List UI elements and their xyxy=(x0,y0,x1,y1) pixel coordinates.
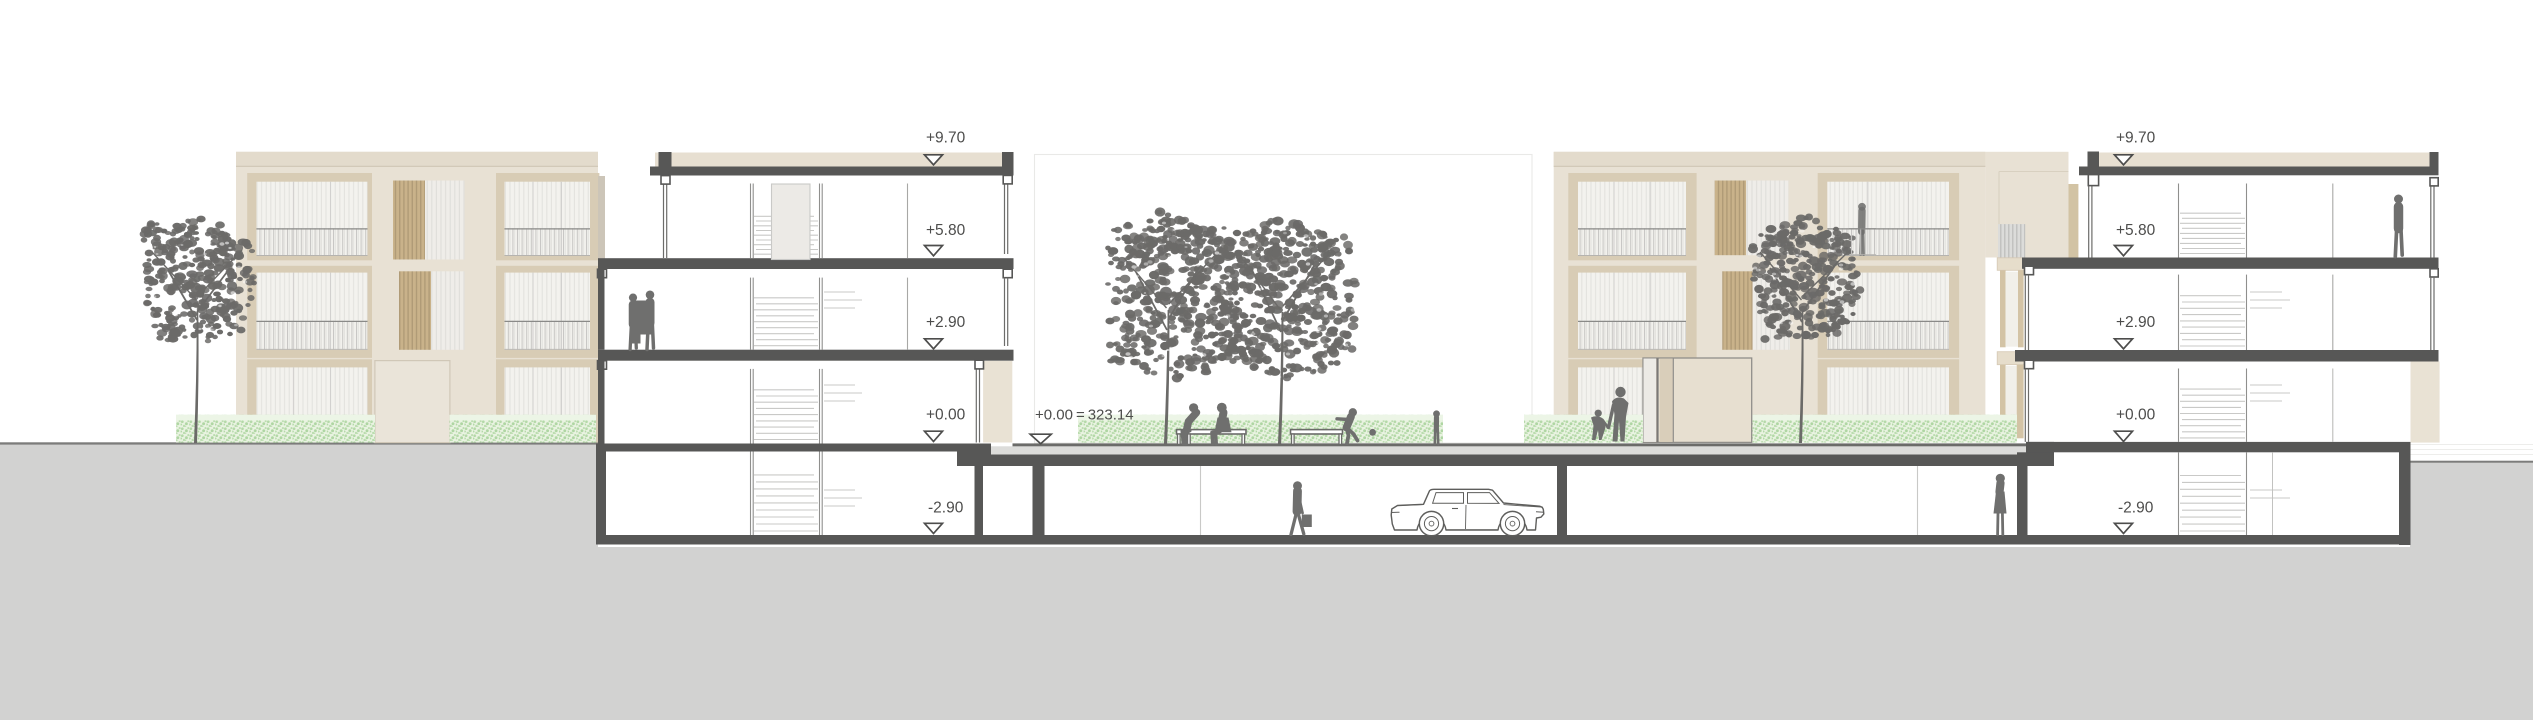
svg-text:+0.00: +0.00 xyxy=(2116,407,2156,424)
svg-text:+9.70: +9.70 xyxy=(2116,130,2156,147)
svg-text:+5.80: +5.80 xyxy=(926,222,966,239)
svg-text:-2.90: -2.90 xyxy=(928,500,964,517)
svg-text:+2.90: +2.90 xyxy=(926,314,966,331)
svg-text:+0.00: +0.00 xyxy=(926,407,966,424)
svg-text:+0.00 = 323.14: +0.00 = 323.14 xyxy=(1035,406,1134,423)
svg-text:-2.90: -2.90 xyxy=(2118,500,2154,517)
svg-text:+9.70: +9.70 xyxy=(926,130,966,147)
svg-text:+2.90: +2.90 xyxy=(2116,314,2156,331)
svg-text:+5.80: +5.80 xyxy=(2116,222,2156,239)
